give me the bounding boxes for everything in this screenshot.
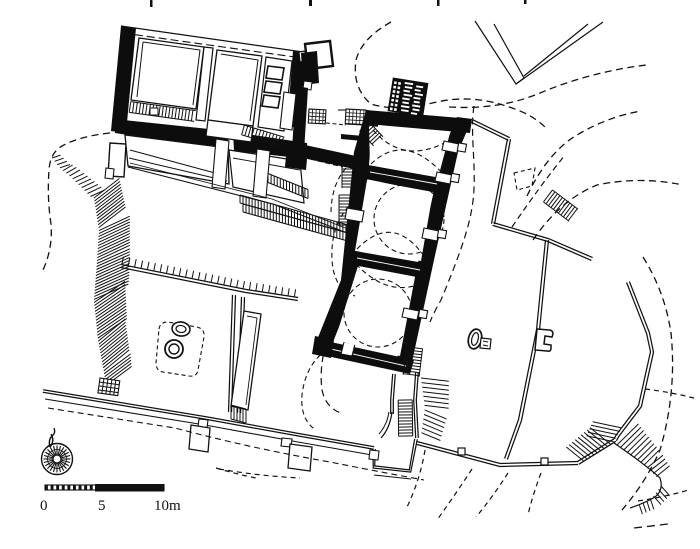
svg-text:0: 0 — [40, 498, 48, 514]
svg-text:10m: 10m — [154, 498, 181, 514]
svg-text:5: 5 — [98, 498, 106, 514]
